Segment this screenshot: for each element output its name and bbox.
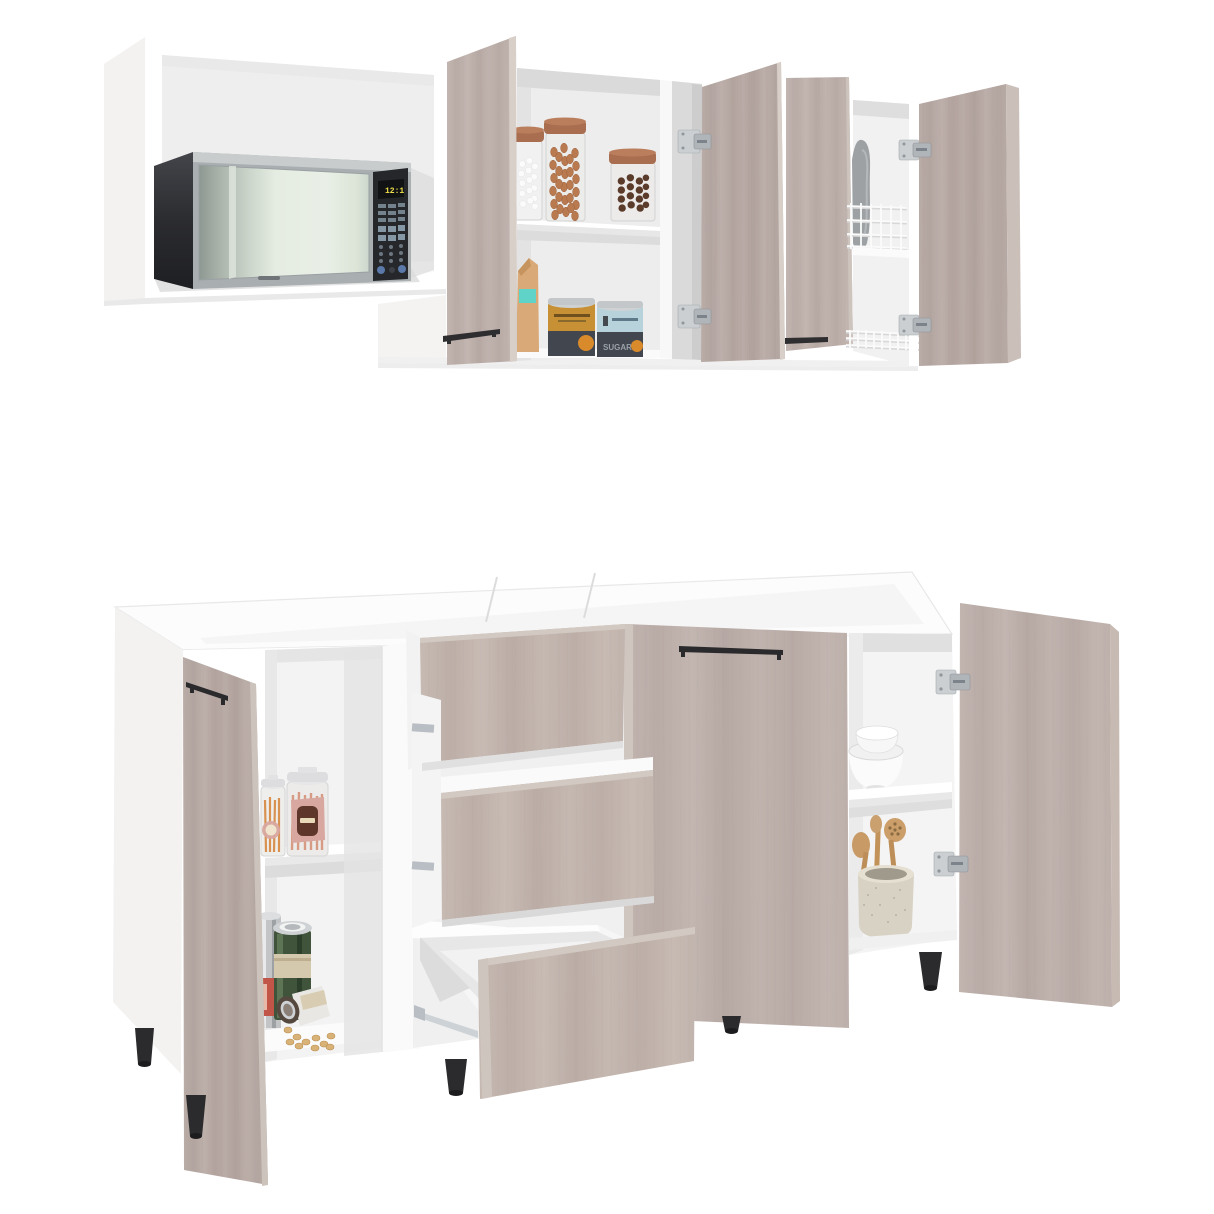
- svg-text:12:1: 12:1: [385, 187, 404, 196]
- svg-text:SUGAR: SUGAR: [603, 343, 632, 352]
